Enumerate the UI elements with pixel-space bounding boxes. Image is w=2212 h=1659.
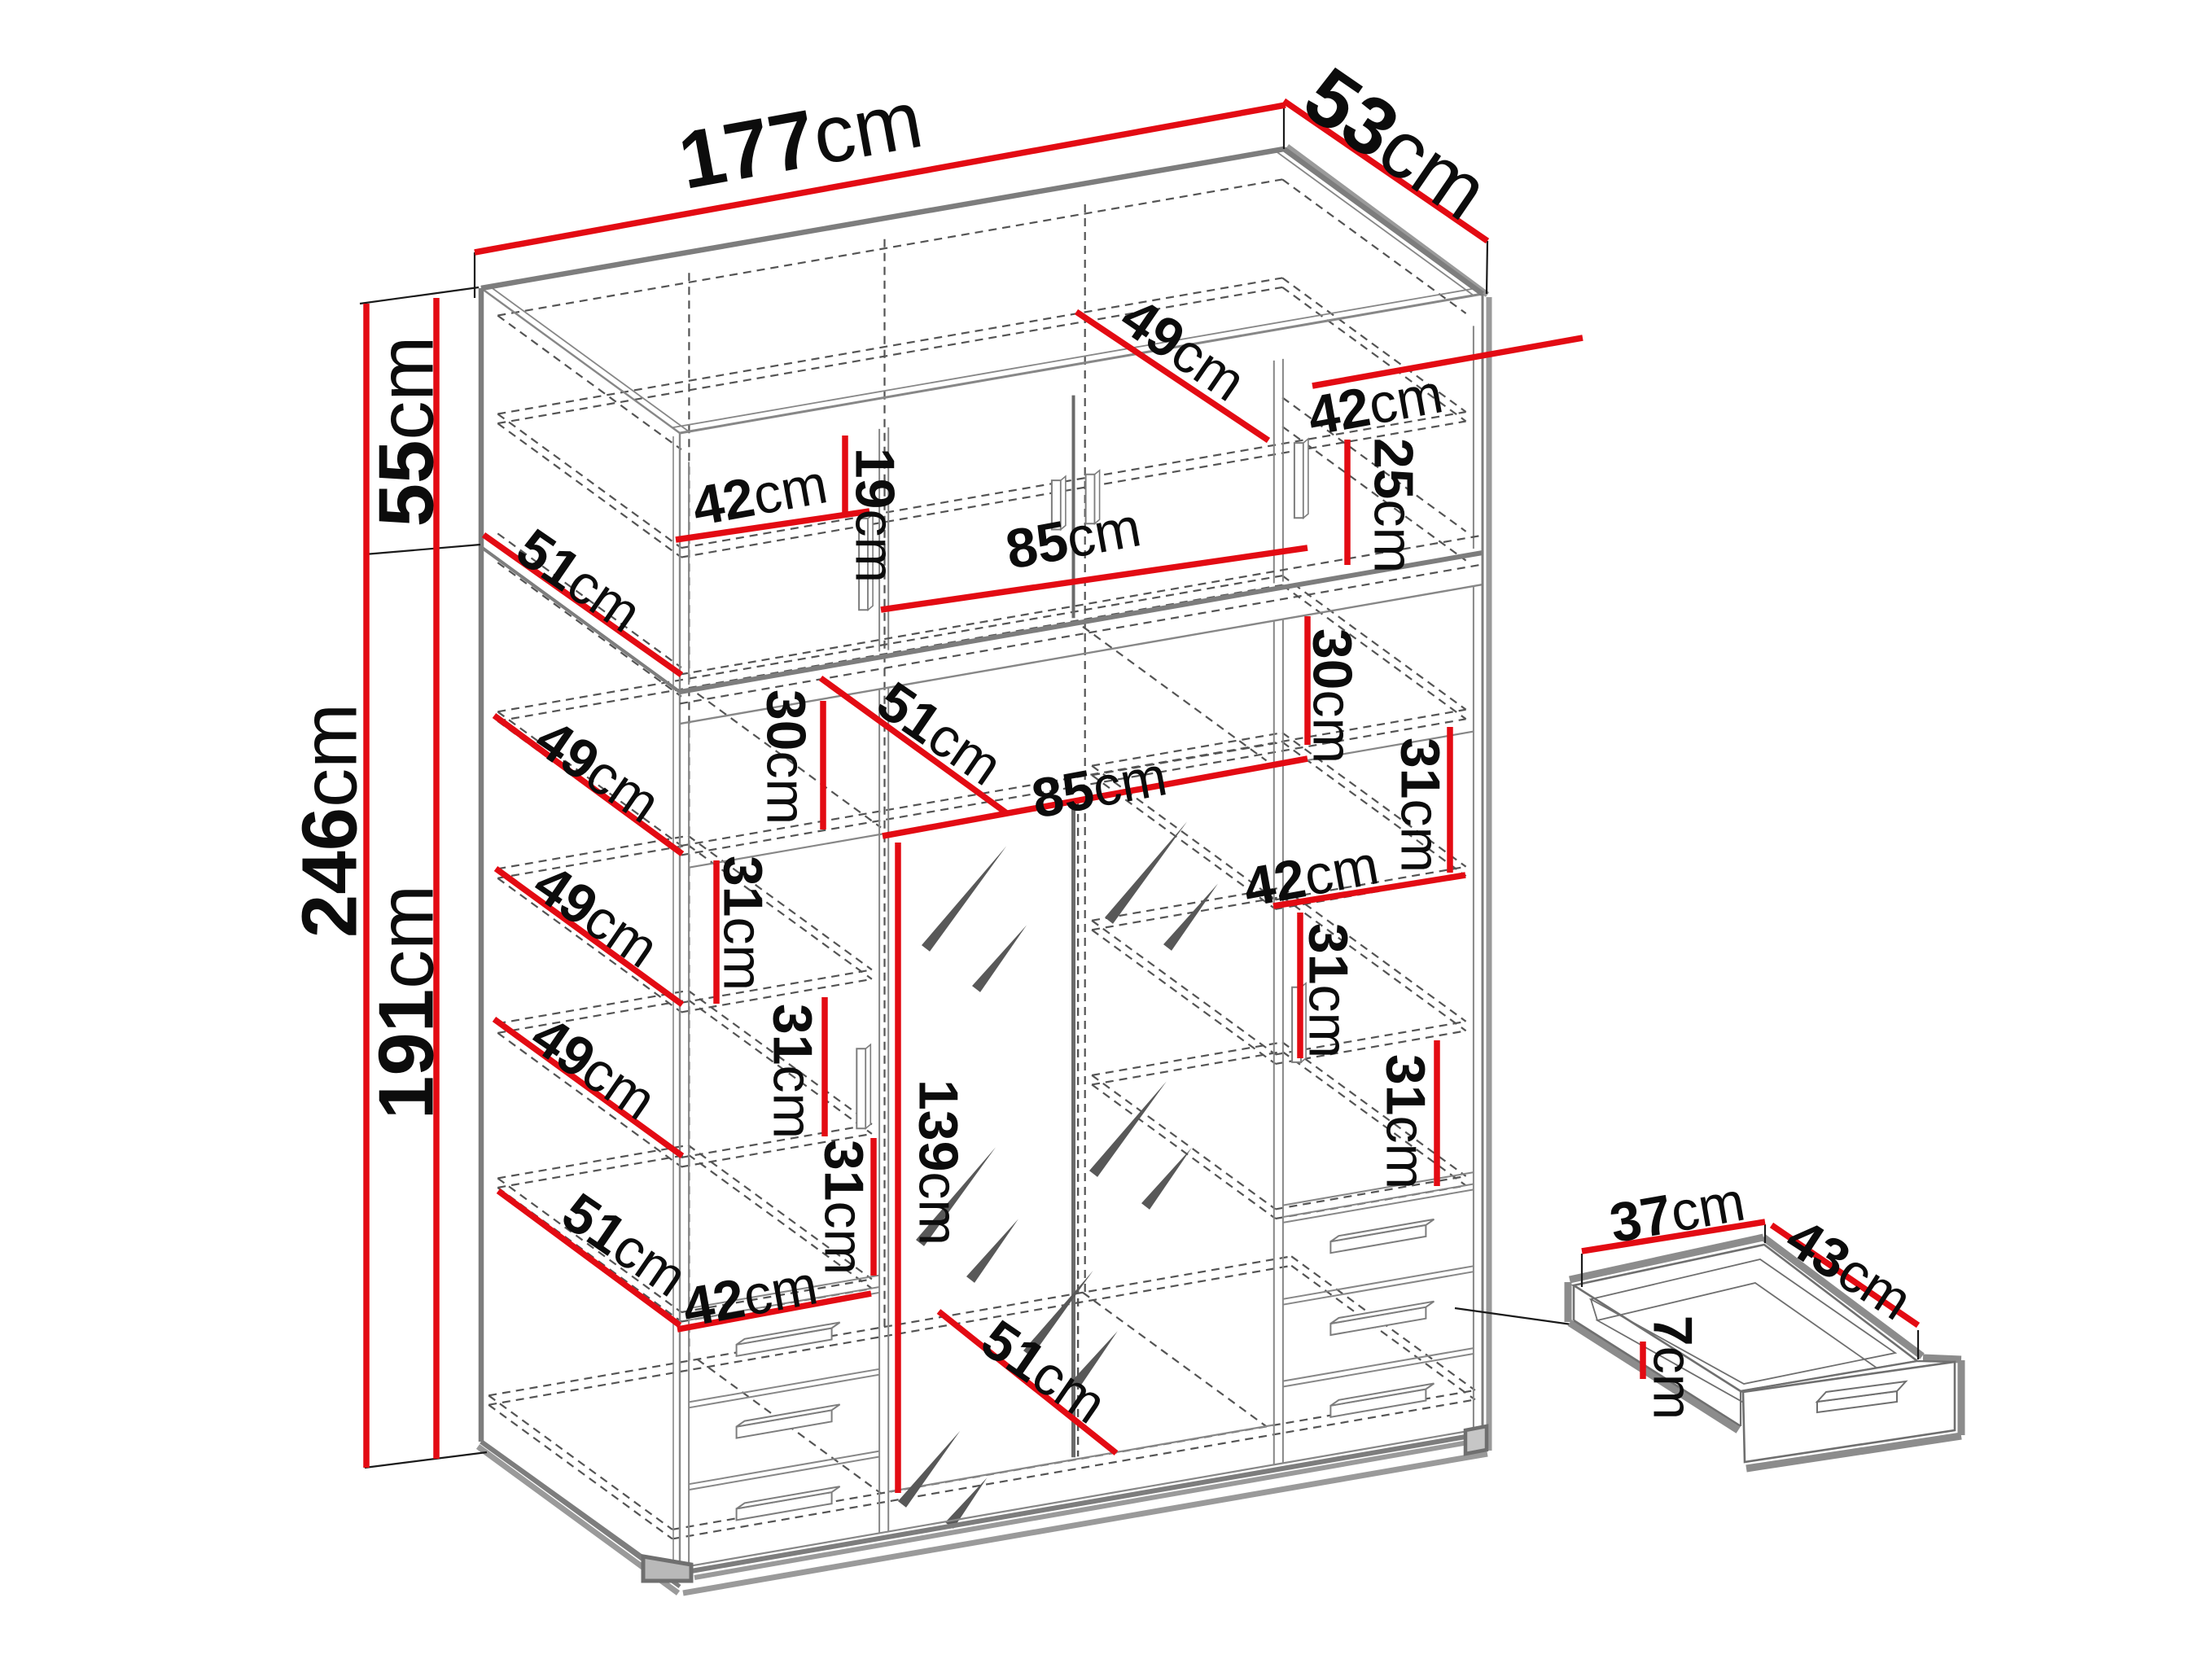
svg-text:30cm: 30cm [756, 689, 817, 825]
svg-text:31cm: 31cm [1375, 1054, 1437, 1189]
svg-text:31cm: 31cm [813, 1140, 875, 1275]
svg-text:30cm: 30cm [1302, 628, 1364, 764]
svg-text:31cm: 31cm [1298, 923, 1360, 1058]
svg-text:19cm: 19cm [844, 448, 906, 583]
svg-text:31cm: 31cm [712, 856, 774, 991]
svg-text:31cm: 31cm [762, 1004, 824, 1139]
svg-text:25cm: 25cm [1363, 438, 1425, 573]
svg-text:55cm: 55cm [363, 336, 450, 527]
svg-text:191cm: 191cm [363, 885, 450, 1119]
svg-text:139cm: 139cm [908, 1079, 970, 1245]
svg-text:7cm: 7cm [1642, 1315, 1704, 1420]
svg-text:246cm: 246cm [287, 703, 374, 938]
svg-text:31cm: 31cm [1390, 738, 1452, 873]
